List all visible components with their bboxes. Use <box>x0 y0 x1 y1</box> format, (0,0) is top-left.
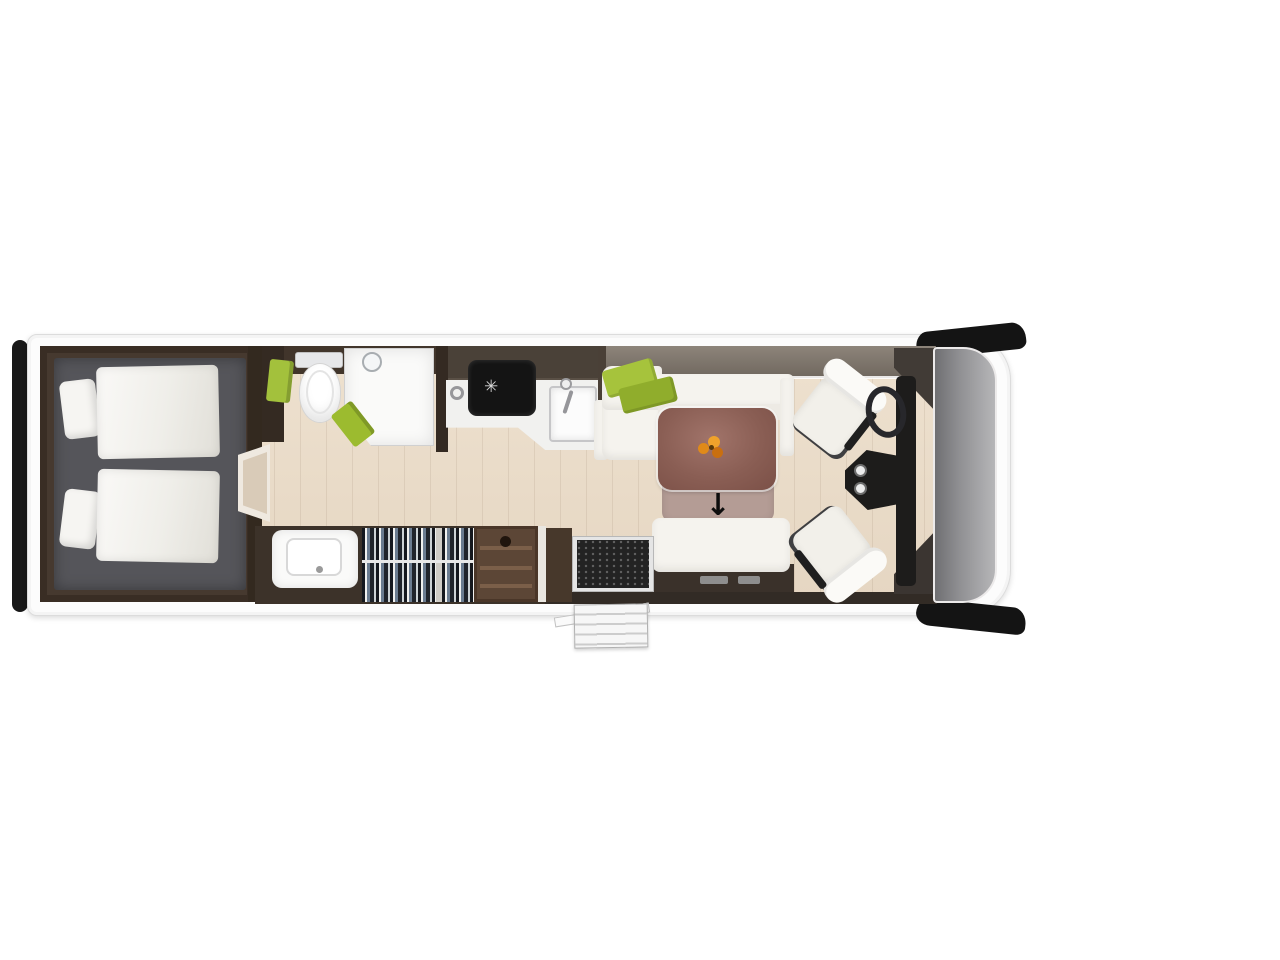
windshield <box>933 347 997 603</box>
shelf-knob-icon <box>500 536 511 547</box>
cup-holder-2 <box>854 482 867 495</box>
hob: ✳ <box>468 360 536 416</box>
basin-tap-icon <box>316 566 323 573</box>
seatbelt-buckle <box>738 576 760 584</box>
exterior-steps <box>574 603 649 648</box>
pillow-upper-bed <box>59 378 102 440</box>
kitchen-sink <box>549 386 597 442</box>
seatbelt-buckle <box>700 576 728 584</box>
shelf <box>480 584 532 588</box>
shower-head-icon <box>362 352 382 372</box>
washbasin-bowl <box>286 538 342 576</box>
green-towel-shelf <box>266 359 294 403</box>
shelf-side-panel <box>538 526 546 602</box>
toilet-seat <box>306 370 334 414</box>
tap-base-icon <box>560 378 572 390</box>
shelf <box>480 566 532 570</box>
bottom-wall-band <box>545 592 937 604</box>
flower-center <box>709 445 714 450</box>
worktop-knob-icon <box>450 386 464 400</box>
open-shelf-unit <box>474 526 538 602</box>
pillow-lower-bed <box>59 488 102 550</box>
entry-door-mat <box>577 540 649 588</box>
table-flowers-icon <box>698 436 728 462</box>
cup-holder-1 <box>854 464 867 477</box>
wardrobe-rail <box>362 560 474 563</box>
twin-bed-lower <box>96 469 220 564</box>
entry-cabinet <box>546 528 572 602</box>
wardrobe-hanging-clothes-2 <box>442 528 474 602</box>
wardrobe-hanging-clothes-1 <box>362 528 436 602</box>
washbasin <box>272 530 358 588</box>
twin-bed-upper <box>96 365 220 460</box>
partition-door-opening <box>243 452 267 514</box>
travel-seat-bench <box>652 518 790 572</box>
flower-petal <box>698 443 709 454</box>
floorplan-stage: ✳ ↓ <box>0 0 1280 960</box>
rear-bumper <box>12 340 28 612</box>
hob-burner-icon: ✳ <box>484 377 498 397</box>
